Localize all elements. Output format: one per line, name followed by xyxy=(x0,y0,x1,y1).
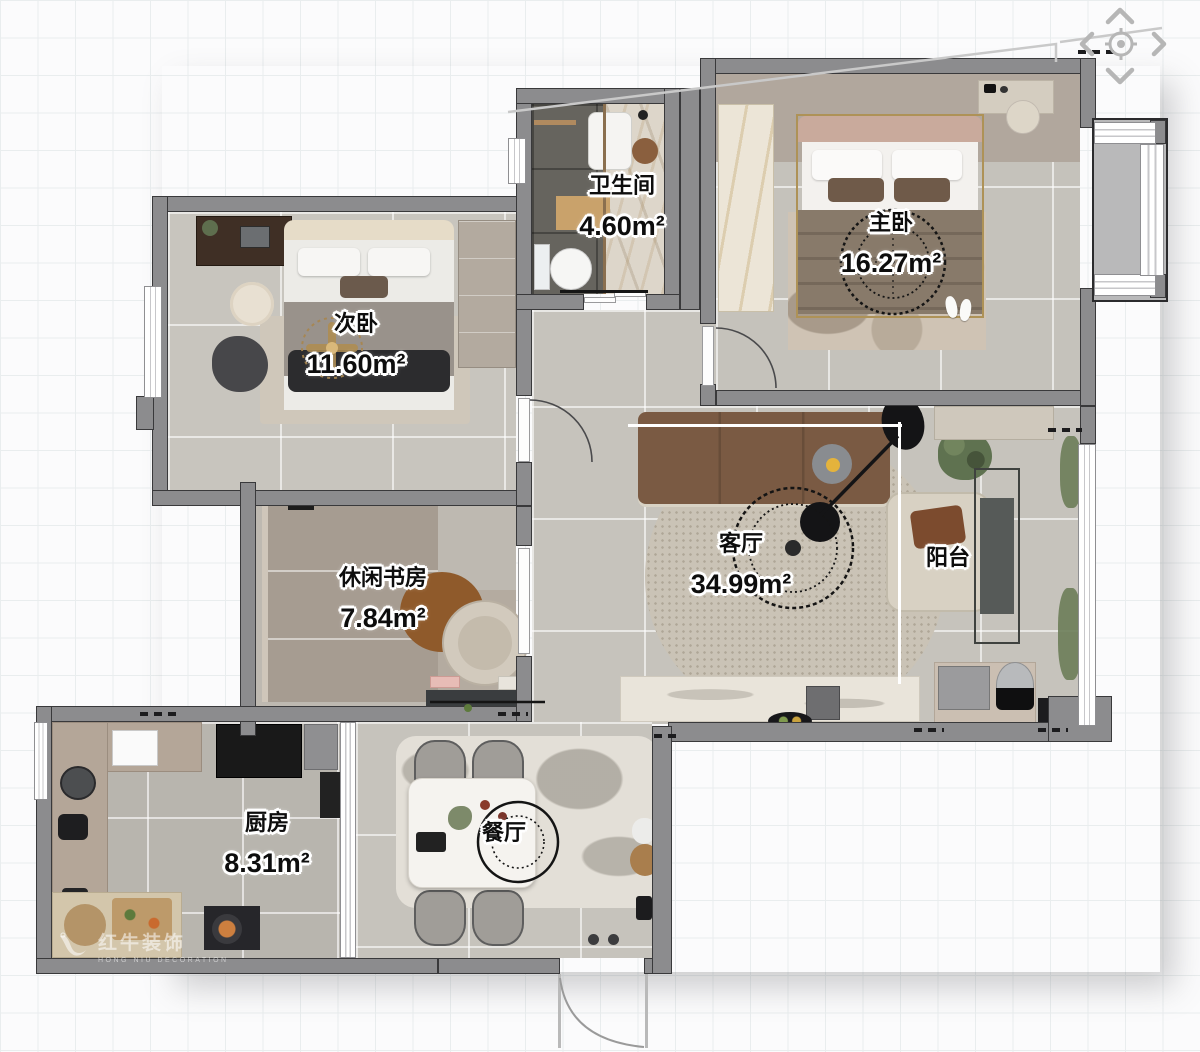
accent-chair-pillow xyxy=(910,505,967,550)
desk-plant xyxy=(202,220,218,236)
opening-dash-living-bottom-a xyxy=(914,728,944,732)
balcony-console xyxy=(934,406,1054,440)
master-wardrobe xyxy=(718,104,774,312)
wall-corridor-col-upper xyxy=(516,88,532,396)
vanity-stool xyxy=(1006,100,1040,134)
opening-dash-living-bottom-b xyxy=(1038,728,1068,732)
bathroom-window xyxy=(508,138,526,184)
wall-chase xyxy=(680,88,700,310)
speaker-box xyxy=(806,686,840,720)
master-door-leaf[interactable] xyxy=(702,326,714,386)
secondary-bedroom-window xyxy=(144,286,162,398)
pan-right-button[interactable] xyxy=(1154,34,1164,54)
opening-dash-balcony-top xyxy=(1048,428,1082,432)
wall-master-left-upper xyxy=(700,58,716,324)
wall-secondary-left-jog xyxy=(136,396,154,430)
floor-lamp-shade xyxy=(800,502,840,542)
entry-decor-dark xyxy=(636,896,652,920)
table-fruit xyxy=(480,800,490,810)
wall-bathroom-bottom-left xyxy=(516,294,584,310)
tv-unit xyxy=(980,498,1014,614)
study-door-leaf[interactable] xyxy=(518,548,530,654)
corridor-floor[interactable] xyxy=(532,310,716,406)
study-armchair-seat xyxy=(458,616,512,670)
wall-study-left xyxy=(240,482,256,736)
shower-head xyxy=(638,110,648,120)
wall-living-right-stub xyxy=(1080,406,1096,444)
pan-down-button[interactable] xyxy=(1108,70,1132,82)
doormat-dot-left xyxy=(588,934,599,945)
watermark-brand: 红牛装饰 xyxy=(98,928,229,955)
wall-living-bottom xyxy=(668,722,1112,742)
target-center-dot xyxy=(1117,40,1125,48)
opening-dash-entry xyxy=(654,734,680,738)
kitchen-glass-partition[interactable] xyxy=(340,722,356,958)
doormat-dot-right xyxy=(608,934,619,945)
wall-study-kitchen-bar xyxy=(36,706,532,722)
entry-door-frame-left xyxy=(558,974,561,1048)
wall-master-left-stub xyxy=(700,384,716,406)
laundry-basin-panel xyxy=(996,688,1034,710)
dining-chair-bottom-right xyxy=(472,890,524,946)
beanbag-chair xyxy=(212,336,268,392)
table-fruit-2 xyxy=(498,812,507,821)
washbasin xyxy=(588,112,632,170)
wall-entry-right-col xyxy=(652,726,672,974)
master-bed-frame xyxy=(796,114,984,318)
toilet-tank xyxy=(534,244,550,290)
chevron-up-icon xyxy=(1108,10,1132,22)
wall-secondary-bottom xyxy=(152,490,532,506)
balcony-divider-vertical xyxy=(898,422,901,684)
opening-dash-kitchen-top xyxy=(140,712,180,716)
bull-logo-icon xyxy=(56,930,90,962)
entry-door-frame-right xyxy=(645,974,648,1048)
vanity-decor-2 xyxy=(1000,86,1008,93)
coffee-machine xyxy=(60,766,96,800)
watermark-subtitle: HONG NIU DECORATION xyxy=(98,957,229,964)
chevron-left-icon xyxy=(1082,34,1092,54)
wall-master-bottom xyxy=(716,390,1096,406)
shower-glass xyxy=(603,104,606,294)
tv-bench xyxy=(620,676,920,722)
floorplan-canvas: { "plan_title": "apartment-floor-plan", … xyxy=(0,0,1200,1052)
bay-window-bottom xyxy=(1094,274,1156,296)
chevron-right-icon xyxy=(1154,34,1164,54)
secondary-brown-pillow xyxy=(340,276,388,298)
table-tray xyxy=(416,832,446,852)
pouf xyxy=(230,282,274,326)
pan-left-button[interactable] xyxy=(1082,34,1092,54)
vanity-decor xyxy=(984,84,996,93)
toilet-bowl xyxy=(550,248,592,290)
reset-view-button[interactable] xyxy=(1105,28,1137,60)
secondary-dark-throw xyxy=(288,350,450,392)
wall-master-right-lower xyxy=(1080,288,1096,406)
laptop xyxy=(240,226,270,248)
wall-bathroom-right xyxy=(664,88,680,310)
wall-corridor-study-upper xyxy=(516,506,532,546)
shower-stool xyxy=(632,138,658,164)
bay-window-top xyxy=(1094,122,1156,144)
bathroom-door-track xyxy=(560,290,648,293)
wall-secondary-top xyxy=(152,196,532,212)
secondary-pillow-left xyxy=(298,248,360,276)
wall-corridor-col-lower xyxy=(516,462,532,506)
bathroom-sliding-door-a[interactable] xyxy=(584,297,616,303)
opening-dash-study-bottom xyxy=(498,712,528,716)
pan-up-button[interactable] xyxy=(1108,10,1132,22)
wall-bathroom-top xyxy=(516,88,680,104)
entry-door-swing-arc xyxy=(560,978,644,1047)
secondary-door-leaf[interactable] xyxy=(518,398,530,462)
towel-bar xyxy=(534,120,576,125)
kitchen-sink xyxy=(112,730,158,766)
flower-pillow-center xyxy=(826,458,840,472)
kitchen-cabinet xyxy=(304,724,338,770)
secondary-wardrobe xyxy=(458,220,516,368)
chevron-down-icon xyxy=(1108,70,1132,82)
balcony-window xyxy=(1078,444,1096,726)
balcony-cabinet xyxy=(938,666,990,710)
dining-chair-bottom-left xyxy=(414,890,466,946)
secondary-pillow-right xyxy=(368,248,430,276)
balcony-divider-horizontal xyxy=(628,424,902,427)
desk-keyboard-pad xyxy=(430,676,460,688)
view-navigation-pad xyxy=(1070,0,1180,92)
bay-window-right xyxy=(1140,144,1164,276)
kitchen-window xyxy=(34,722,48,800)
wall-master-top xyxy=(700,58,1096,74)
wall-bathroom-bottom-right xyxy=(646,294,680,310)
oven xyxy=(320,772,340,818)
fridge xyxy=(216,724,302,778)
bath-mat xyxy=(556,196,610,230)
wall-dining-bottom xyxy=(438,958,560,974)
watermark: 红牛装饰 HONG NIU DECORATION xyxy=(56,928,229,964)
kettle xyxy=(58,814,88,840)
